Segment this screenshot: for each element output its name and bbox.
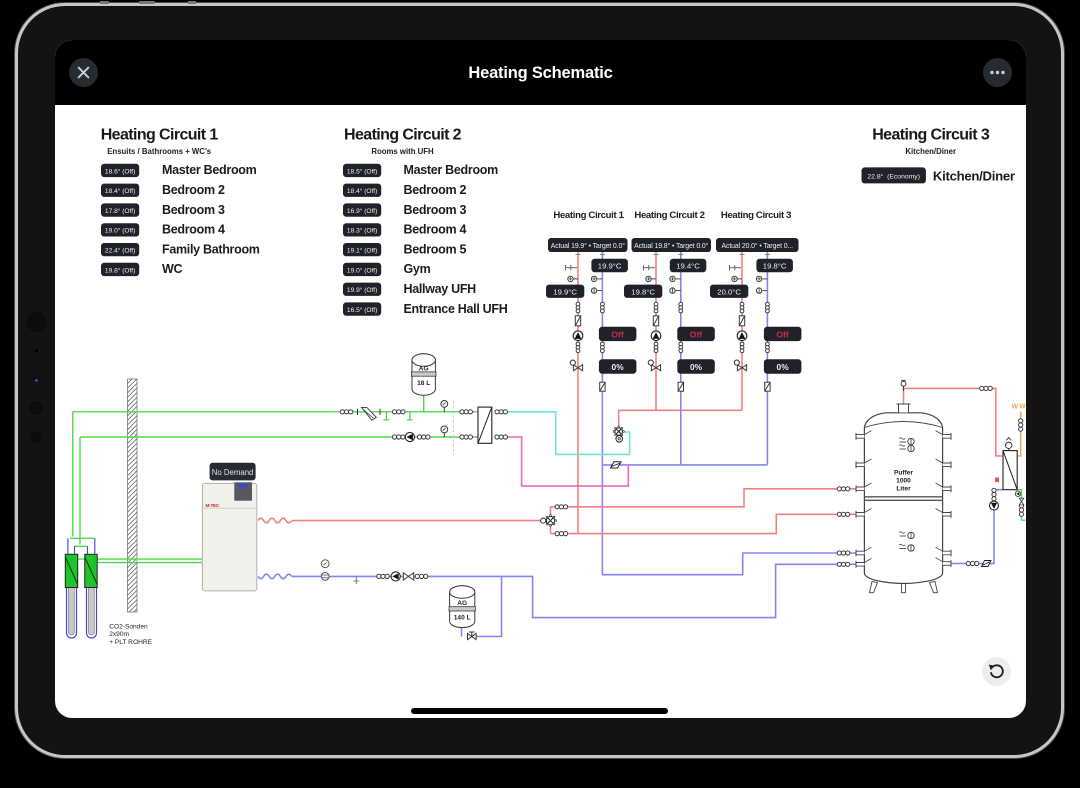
svg-text:22.4° (Off): 22.4° (Off) (105, 247, 135, 255)
svg-text:Bedroom 4: Bedroom 4 (162, 223, 225, 237)
svg-text:AG: AG (419, 365, 429, 372)
svg-text:19.0° (Off): 19.0° (Off) (347, 266, 377, 274)
svg-text:140 L: 140 L (454, 614, 471, 621)
svg-text:22.8° (Economy): 22.8° (Economy) (867, 172, 920, 180)
svg-text:Off: Off (690, 329, 703, 339)
svg-text:Master Bedroom: Master Bedroom (162, 163, 257, 177)
svg-text:1000: 1000 (896, 478, 911, 485)
svg-text:18.6° (Off): 18.6° (Off) (105, 167, 135, 175)
svg-text:Entrance Hall UFH: Entrance Hall UFH (404, 302, 508, 316)
svg-text:19.9°C: 19.9°C (598, 262, 622, 271)
svg-text:16.9° (Off): 16.9° (Off) (347, 207, 377, 215)
svg-text:18.4° (Off): 18.4° (Off) (105, 187, 135, 195)
svg-text:19.8°C: 19.8°C (763, 262, 787, 271)
svg-text:Liter: Liter (896, 486, 911, 493)
svg-text:19.8°C: 19.8°C (631, 287, 655, 296)
svg-text:18.4° (Off): 18.4° (Off) (347, 187, 377, 195)
svg-text:Heating Circuit 3: Heating Circuit 3 (721, 210, 791, 221)
svg-text:19.1° (Off): 19.1° (Off) (347, 247, 377, 255)
svg-text:0%: 0% (777, 362, 790, 372)
svg-text:0%: 0% (690, 362, 703, 372)
svg-text:20.0°C: 20.0°C (717, 287, 741, 296)
svg-text:17.8° (Off): 17.8° (Off) (105, 207, 135, 215)
svg-text:18 L: 18 L (417, 380, 430, 387)
svg-text:19.8° (Off): 19.8° (Off) (105, 266, 135, 274)
svg-text:0%: 0% (612, 362, 625, 372)
svg-text:Puffer: Puffer (894, 470, 913, 477)
svg-text:Heating Circuit 2: Heating Circuit 2 (344, 127, 462, 144)
svg-text:Hallway UFH: Hallway UFH (404, 282, 477, 296)
svg-text:Master Bedroom: Master Bedroom (404, 163, 499, 177)
svg-text:18.5° (Off): 18.5° (Off) (347, 167, 377, 175)
svg-text:Bedroom 4: Bedroom 4 (404, 223, 467, 237)
svg-text:Heating Circuit 1: Heating Circuit 1 (553, 210, 624, 221)
svg-text:WW: WW (1012, 404, 1027, 411)
svg-text:Kitchen/Diner: Kitchen/Diner (933, 168, 1015, 183)
svg-text:Off: Off (776, 329, 789, 339)
svg-text:Gym: Gym (404, 262, 431, 276)
svg-text:+ PLT ROHRE: + PLT ROHRE (109, 639, 152, 646)
svg-text:M-TEC: M-TEC (206, 503, 220, 508)
svg-text:Heating Circuit 3: Heating Circuit 3 (872, 127, 990, 144)
svg-text:Kitchen/Diner: Kitchen/Diner (905, 147, 956, 156)
svg-text:Off: Off (611, 329, 624, 339)
svg-text:Bedroom 2: Bedroom 2 (404, 183, 467, 197)
svg-text:WC: WC (162, 262, 182, 276)
svg-text:Actual 19.8° • Target 0.0°: Actual 19.8° • Target 0.0° (634, 242, 708, 250)
svg-text:Family Bathroom: Family Bathroom (162, 242, 260, 256)
svg-text:2x90m: 2x90m (109, 631, 129, 638)
svg-text:CO2-Sonden: CO2-Sonden (109, 624, 148, 631)
svg-text:Actual 19.9° • Target 0.0°: Actual 19.9° • Target 0.0° (551, 242, 625, 250)
svg-text:19.4°C: 19.4°C (676, 262, 700, 271)
svg-text:18.3° (Off): 18.3° (Off) (347, 227, 377, 235)
svg-text:19.9° (Off): 19.9° (Off) (347, 286, 377, 294)
svg-text:Ensuits / Bathrooms + WC’s: Ensuits / Bathrooms + WC’s (107, 147, 212, 156)
svg-text:Heating Circuit 2: Heating Circuit 2 (634, 210, 704, 221)
svg-text:AG: AG (457, 600, 467, 607)
svg-text:No Demand: No Demand (212, 468, 254, 477)
svg-text:Bedroom 2: Bedroom 2 (162, 183, 225, 197)
svg-text:Heating Circuit 1: Heating Circuit 1 (101, 127, 219, 144)
svg-text:Bedroom 3: Bedroom 3 (404, 203, 467, 217)
svg-text:19.9°C: 19.9°C (553, 287, 577, 296)
svg-text:16.5° (Off): 16.5° (Off) (347, 306, 377, 314)
svg-text:Rooms with UFH: Rooms with UFH (371, 147, 434, 156)
svg-text:Bedroom 3: Bedroom 3 (162, 203, 225, 217)
svg-text:Bedroom 5: Bedroom 5 (404, 242, 467, 256)
svg-text:19.0° (Off): 19.0° (Off) (105, 227, 135, 235)
svg-text:Actual 20.0° • Target 0...: Actual 20.0° • Target 0... (722, 242, 794, 250)
